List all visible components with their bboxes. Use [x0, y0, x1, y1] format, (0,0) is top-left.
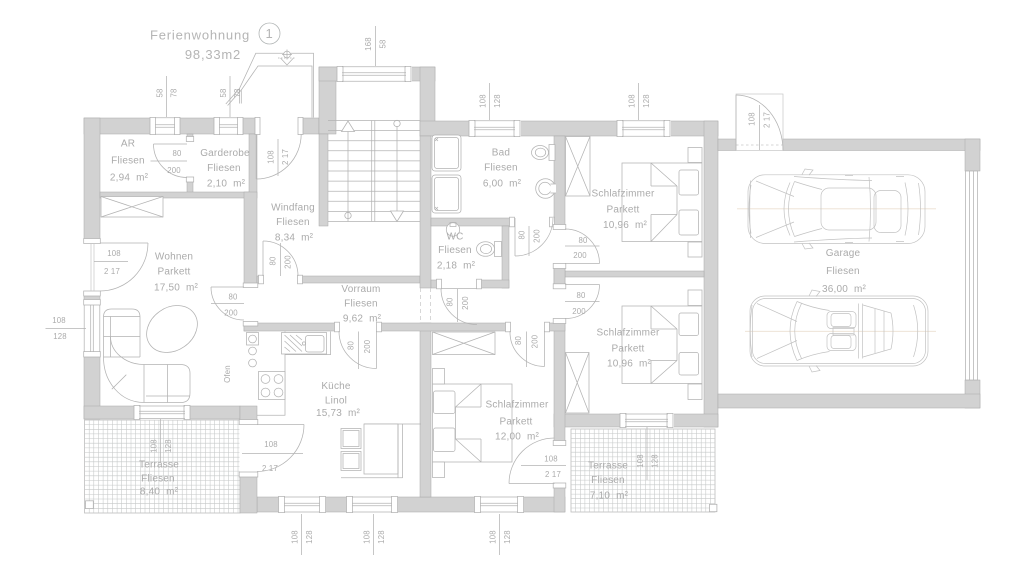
svg-text:Fliesen: Fliesen — [438, 245, 472, 256]
svg-text:2 17: 2 17 — [545, 470, 561, 479]
svg-text:Garage: Garage — [826, 248, 861, 259]
svg-text:Ofen: Ofen — [223, 365, 232, 383]
svg-text:2 17: 2 17 — [262, 464, 278, 473]
svg-text:128: 128 — [493, 94, 502, 108]
svg-text:98,33m2: 98,33m2 — [185, 47, 241, 62]
svg-text:80: 80 — [578, 236, 588, 245]
svg-text:Parkett: Parkett — [606, 205, 639, 216]
svg-text:200: 200 — [533, 229, 542, 243]
svg-text:Linol: Linol — [325, 396, 347, 407]
svg-text:Parkett: Parkett — [157, 267, 190, 278]
svg-text:80: 80 — [347, 341, 356, 351]
svg-text:128: 128 — [305, 530, 314, 544]
svg-text:80: 80 — [518, 230, 527, 240]
svg-text:10,96 m²: 10,96 m² — [603, 220, 648, 231]
svg-text:108: 108 — [363, 530, 372, 544]
svg-text:78: 78 — [233, 88, 242, 97]
svg-text:2 17: 2 17 — [104, 267, 120, 276]
svg-text:Schlafzimmer: Schlafzimmer — [592, 189, 655, 200]
svg-text:108: 108 — [628, 94, 637, 108]
svg-text:2 17: 2 17 — [763, 112, 772, 128]
svg-text:108: 108 — [748, 112, 757, 126]
svg-text:WC: WC — [446, 232, 463, 243]
svg-text:2 17: 2 17 — [281, 149, 290, 165]
svg-text:128: 128 — [642, 94, 651, 108]
svg-text:Parkett: Parkett — [611, 344, 644, 355]
svg-text:Fliesen: Fliesen — [111, 156, 145, 167]
svg-text:128: 128 — [377, 530, 386, 544]
svg-text:80: 80 — [576, 291, 586, 300]
svg-text:108: 108 — [150, 439, 159, 453]
svg-text:80: 80 — [446, 297, 455, 307]
svg-text:Garderobe: Garderobe — [200, 148, 250, 159]
svg-text:200: 200 — [284, 255, 293, 269]
svg-text:58: 58 — [219, 88, 228, 97]
svg-text:15,73 m²: 15,73 m² — [316, 408, 361, 419]
svg-text:Parkett: Parkett — [499, 417, 532, 428]
svg-text:Terrasse: Terrasse — [588, 461, 628, 472]
svg-text:58: 58 — [379, 39, 388, 48]
svg-text:58: 58 — [156, 88, 165, 97]
svg-text:108: 108 — [489, 530, 498, 544]
svg-text:168: 168 — [364, 37, 373, 51]
svg-text:8,34 m²: 8,34 m² — [275, 233, 314, 244]
svg-text:200: 200 — [572, 307, 586, 316]
svg-text:200: 200 — [461, 296, 470, 310]
svg-text:Windfang: Windfang — [271, 203, 315, 214]
svg-text:6,00 m²: 6,00 m² — [483, 179, 522, 190]
svg-text:17,50 m²: 17,50 m² — [154, 283, 199, 294]
svg-text:Schlafzimmer: Schlafzimmer — [486, 400, 549, 411]
svg-text:Fliesen: Fliesen — [276, 217, 310, 228]
svg-text:108: 108 — [544, 455, 558, 464]
svg-text:200: 200 — [167, 166, 181, 175]
svg-text:80: 80 — [514, 336, 523, 346]
svg-text:Fliesen: Fliesen — [826, 266, 860, 277]
svg-text:78: 78 — [170, 88, 179, 97]
svg-text:128: 128 — [53, 332, 67, 341]
svg-text:128: 128 — [651, 454, 660, 468]
svg-text:128: 128 — [164, 439, 173, 453]
svg-text:108: 108 — [267, 150, 276, 164]
svg-text:Fliesen: Fliesen — [591, 475, 625, 486]
svg-text:2,10 m²: 2,10 m² — [207, 179, 246, 190]
svg-text:108: 108 — [107, 249, 121, 258]
svg-text:Fliesen: Fliesen — [344, 299, 378, 310]
svg-text:10,96 m²: 10,96 m² — [607, 359, 652, 370]
svg-text:36,00 m²: 36,00 m² — [822, 284, 867, 295]
svg-text:80: 80 — [228, 293, 238, 302]
svg-text:Fliesen: Fliesen — [484, 163, 518, 174]
svg-text:Küche: Küche — [321, 381, 351, 392]
svg-text:200: 200 — [531, 334, 540, 348]
svg-text:Fliesen: Fliesen — [207, 163, 241, 174]
svg-text:108: 108 — [52, 316, 66, 325]
svg-text:Schlafzimmer: Schlafzimmer — [597, 328, 660, 339]
svg-text:AR: AR — [121, 139, 135, 150]
svg-text:8,40 m²: 8,40 m² — [140, 487, 179, 498]
svg-text:200: 200 — [363, 339, 372, 353]
svg-text:Ferienwohnung: Ferienwohnung — [150, 28, 250, 43]
svg-text:Terrasse: Terrasse — [139, 460, 179, 471]
svg-text:12,00 m²: 12,00 m² — [495, 432, 540, 443]
svg-text:200: 200 — [573, 251, 587, 260]
svg-text:108: 108 — [479, 94, 488, 108]
svg-text:108: 108 — [636, 454, 645, 468]
svg-text:9,62 m²: 9,62 m² — [343, 314, 382, 325]
svg-text:2,94 m²: 2,94 m² — [110, 173, 149, 184]
svg-text:80: 80 — [172, 149, 182, 158]
svg-text:Vorraum: Vorraum — [341, 284, 380, 295]
svg-text:108: 108 — [264, 440, 278, 449]
svg-text:2,18 m²: 2,18 m² — [437, 261, 476, 272]
svg-text:7,10 m²: 7,10 m² — [590, 491, 629, 502]
svg-text:Wohnen: Wohnen — [155, 252, 193, 263]
svg-text:80: 80 — [269, 256, 278, 266]
svg-text:Bad: Bad — [492, 148, 510, 159]
svg-text:108: 108 — [291, 530, 300, 544]
svg-text:128: 128 — [503, 530, 512, 544]
svg-text:200: 200 — [224, 309, 238, 318]
svg-text:1: 1 — [265, 26, 273, 41]
svg-text:Fliesen: Fliesen — [141, 474, 175, 485]
